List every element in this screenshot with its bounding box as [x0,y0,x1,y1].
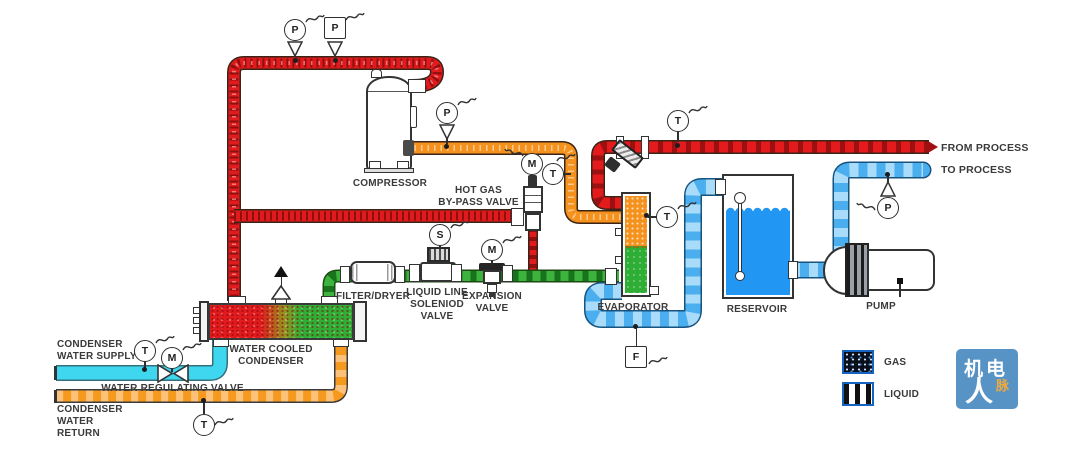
condenser-port-3 [193,327,200,334]
condenser-port-1 [193,307,200,314]
pump-motor [867,249,935,291]
filter-dryer-end-left [352,264,359,281]
return-pipe-end [54,390,57,403]
bypass-body-lower [525,213,541,231]
from-process-pipe-end [928,141,938,153]
capillary-squiggle [305,13,325,25]
from-process-label: FROM PROCESS [941,142,1031,154]
logo-text-main: 人 [965,370,993,410]
evaporator-liquid-zone [625,246,647,293]
pressure-gauge-suction-connector [439,124,455,140]
compressor-seam [368,91,410,92]
evaporator-bottom-stub [649,286,659,295]
compressor-top-nub [371,69,382,78]
flow-gauge-evaporator: F [625,346,647,368]
relief-valve-body [271,285,291,300]
pump-ribs [845,243,869,297]
to-process-label: TO PROCESS [941,164,1031,176]
union-4 [451,264,462,282]
temp-gauge-supply: T [134,340,156,362]
relief-valve-arrow [274,266,288,277]
pressure-gauge-to-process: P [877,197,899,219]
compressor-base [364,168,414,173]
motor-gauge-expansion: M [481,239,503,261]
union-2 [395,266,405,283]
pressure-gauge-suction: P [436,102,458,124]
level-rod-ball [735,271,745,281]
union-5 [502,265,513,282]
condenser-label: WATER COOLED CONDENSER [221,344,321,368]
solenoid-coil [427,247,450,262]
union-3 [409,264,420,282]
legend-liquid-label: LIQUID [884,389,934,401]
compressor-discharge-flange [408,79,426,93]
motor-gauge-regulating: M [161,347,183,369]
condenser-port-2 [193,317,200,324]
condenser-shell [208,303,354,340]
temp-gauge-from-process: T [667,110,689,132]
filter-dryer-shell [350,261,396,284]
condenser-water-return-label: CONDENSER WATER RETURN [57,404,137,439]
condenser-right-flange [353,301,367,342]
solenoid-gauge: S [429,224,451,246]
pressure-gauge-discharge-1-connector [287,41,303,57]
evaporator-gas-zone [625,196,647,246]
bypass-body-upper [523,186,543,213]
level-rod [738,199,742,279]
evaporator-label: EVAPORATOR [595,302,671,314]
compressor-label: COMPRESSOR [344,178,436,190]
temp-gauge-evaporator: T [656,206,678,228]
motor-gauge-bypass: M [521,153,543,175]
reservoir-inlet-stub [715,179,726,195]
temp-gauge-suction: T [542,163,564,185]
level-rod-knob [734,192,746,204]
expansion-valve-label: EXPANSION VALVE [456,291,528,315]
reservoir-water-surface [726,205,790,212]
expansion-body [483,270,501,284]
strainer-flange-right [641,136,649,159]
pump-label: PUMP [856,301,906,313]
pressure-switch-connector [327,41,343,57]
temp-gauge-return: T [193,414,215,436]
logo-text-accent: 脉 [996,375,1009,394]
legend-gas-swatch [842,350,874,374]
filter-dryer-end-right [387,264,394,281]
compressor-suction-fitting [403,140,414,156]
bypass-valve-label: HOT GAS BY-PASS VALVE [436,185,521,209]
condenser-return-tab [333,339,349,347]
evaporator-vessel [621,192,651,297]
pump-leader-line [899,284,901,297]
chiller-process-diagram: COMPRESSOR WATER COOLED CONDENSER WATER … [0,0,1078,450]
brand-logo: 机电 人 脉 [956,349,1018,409]
pressure-gauge-to-process-connector [880,181,896,197]
water-regulating-valve-label: WATER REGULATING VALVE [100,383,245,395]
union-1 [340,266,350,283]
condenser-water-supply-label: CONDENSER WATER SUPPLY [57,339,137,363]
reservoir-outlet-stub [788,261,798,279]
union-6 [605,268,617,285]
reservoir-label: RESERVOIR [718,304,796,316]
reservoir-water [726,211,790,295]
compressor-terminal-box [410,106,417,128]
supply-pipe-end [54,366,57,380]
pressure-gauge-discharge-1: P [284,19,306,41]
legend-gas-label: GAS [884,357,924,369]
legend-liquid-swatch [842,382,874,406]
pressure-switch-discharge: P [324,17,346,39]
reservoir-tank [722,174,794,299]
